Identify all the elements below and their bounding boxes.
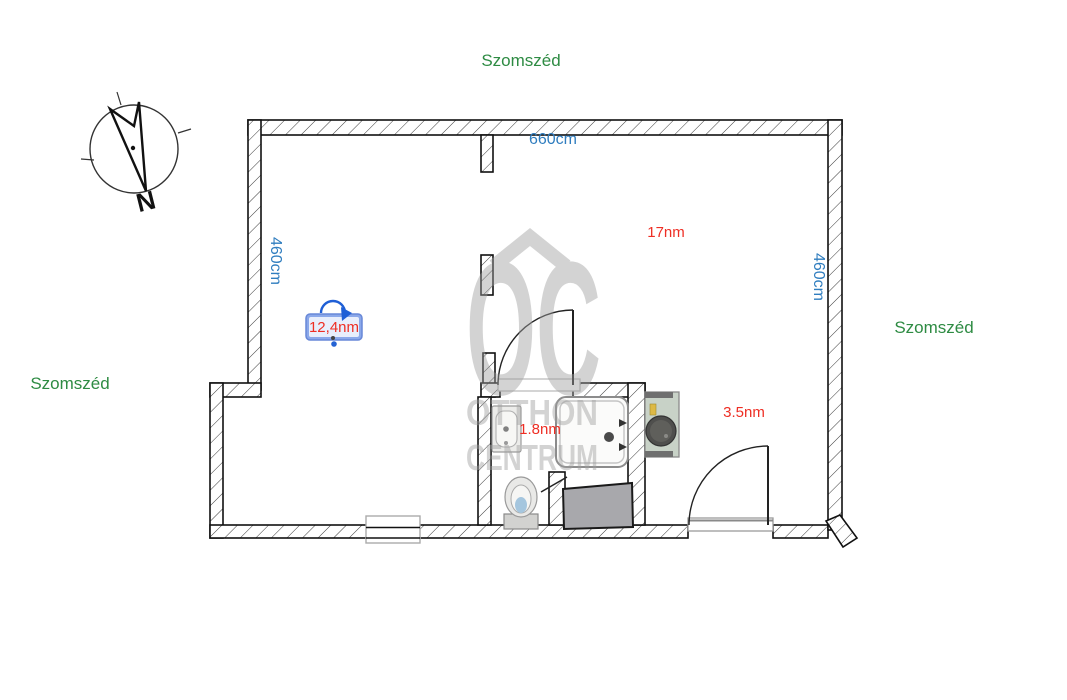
- wall-end-cut-mark: [826, 515, 857, 547]
- toilet-water: [515, 497, 527, 513]
- compass-tick-left: [81, 159, 94, 160]
- compass-north-label: N: [133, 184, 158, 218]
- floor-plan-drawing: N OC OTTHON CENTRUM Szomszéd Szomszéd Sz…: [0, 0, 1067, 700]
- compass: N: [81, 92, 191, 218]
- window: [366, 516, 420, 543]
- wall-bottom-left: [210, 525, 368, 538]
- toilet: [504, 477, 538, 529]
- compass-tick-right: [178, 129, 191, 133]
- wall-left-upper: [248, 120, 261, 390]
- wall-bottom-middle: [418, 525, 688, 538]
- washing-machine-drum-dot: [664, 434, 668, 438]
- wall-bottom-right: [773, 525, 828, 538]
- watermark: OC OTTHON CENTRUM: [466, 223, 601, 478]
- selected-room-label-widget[interactable]: 12,4nm: [306, 301, 362, 347]
- compass-center-dot: [131, 146, 135, 150]
- entrance-door-swing-arc: [689, 446, 768, 525]
- wall-divider-stub-top: [481, 135, 493, 172]
- neighbor-label-right: Szomszéd: [894, 318, 973, 337]
- rotation-origin-dot: [331, 336, 335, 340]
- selection-handle-dot[interactable]: [331, 341, 337, 347]
- compass-tick-top: [117, 92, 121, 105]
- washing-machine-bottom-bar: [645, 451, 673, 457]
- wall-left-lower: [210, 383, 223, 538]
- room-label-main[interactable]: 17nm: [647, 224, 685, 241]
- watermark-name-line2: CENTRUM: [466, 437, 598, 478]
- dimension-right: 460cm: [810, 253, 827, 301]
- washing-machine: [645, 392, 679, 457]
- room-label-living[interactable]: 12,4nm: [309, 319, 359, 336]
- washing-machine-control: [650, 404, 656, 415]
- utility-box: [563, 483, 633, 529]
- compass-needle: [110, 102, 146, 191]
- dimension-top: 660cm: [529, 131, 577, 148]
- washing-machine-drum-inner: [650, 420, 672, 442]
- washing-machine-top-bar: [645, 392, 673, 398]
- floor-plan-canvas: N OC OTTHON CENTRUM Szomszéd Szomszéd Sz…: [0, 0, 1067, 700]
- wall-right: [828, 120, 842, 530]
- room-label-hall[interactable]: 3.5nm: [723, 404, 765, 421]
- neighbor-label-left: Szomszéd: [30, 374, 109, 393]
- neighbor-label-top: Szomszéd: [481, 51, 560, 70]
- room-label-bathroom[interactable]: 1.8nm: [519, 421, 561, 438]
- dimension-left: 460cm: [267, 237, 284, 285]
- shower-drain: [604, 432, 614, 442]
